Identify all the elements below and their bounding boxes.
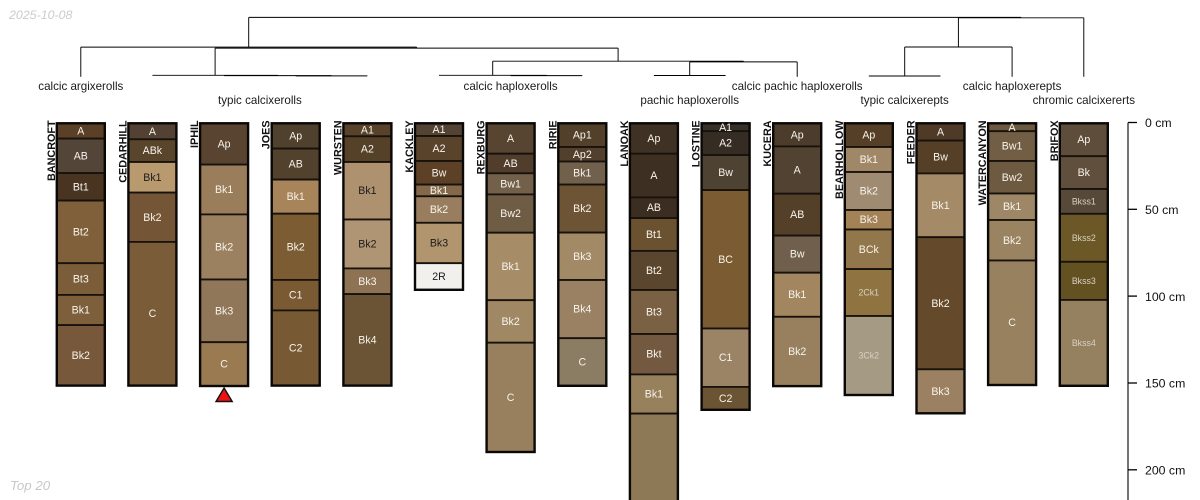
svg-text:2025-10-08: 2025-10-08 — [8, 8, 72, 22]
svg-text:Bk1: Bk1 — [215, 184, 233, 196]
svg-text:Bk3: Bk3 — [358, 276, 376, 288]
svg-text:Bk3: Bk3 — [931, 386, 949, 398]
svg-text:Bk1: Bk1 — [72, 305, 90, 317]
svg-text:Bk2: Bk2 — [573, 203, 591, 215]
svg-text:Bw: Bw — [790, 249, 805, 261]
svg-text:Bw: Bw — [718, 167, 733, 179]
svg-text:A2: A2 — [433, 143, 446, 155]
svg-text:A1: A1 — [433, 124, 446, 136]
svg-text:Bw: Bw — [432, 167, 447, 179]
svg-text:Bk3: Bk3 — [430, 238, 448, 250]
svg-text:Bk2: Bk2 — [860, 186, 878, 198]
svg-text:A: A — [149, 126, 157, 138]
svg-text:Bk4: Bk4 — [358, 334, 376, 346]
svg-text:Bk2: Bk2 — [215, 241, 233, 253]
svg-text:2Ck1: 2Ck1 — [859, 288, 880, 298]
svg-text:Ap: Ap — [289, 130, 302, 142]
svg-text:Bk1: Bk1 — [860, 154, 878, 166]
svg-text:A: A — [1009, 122, 1017, 134]
svg-text:Bk2: Bk2 — [358, 238, 376, 250]
svg-text:Bw: Bw — [933, 152, 948, 164]
svg-text:Ap: Ap — [862, 130, 875, 142]
svg-text:Ap: Ap — [218, 138, 231, 150]
svg-text:Ap2: Ap2 — [573, 149, 592, 161]
svg-text:pachic haploxerolls: pachic haploxerolls — [640, 94, 739, 107]
svg-text:C1: C1 — [289, 290, 303, 302]
svg-text:Bk2: Bk2 — [72, 350, 90, 362]
svg-text:Bkt: Bkt — [646, 349, 661, 361]
svg-text:Bk3: Bk3 — [860, 214, 878, 226]
svg-text:chromic calcixererts: chromic calcixererts — [1033, 94, 1136, 107]
svg-text:Bk1: Bk1 — [573, 168, 591, 180]
svg-text:C: C — [220, 359, 228, 371]
svg-text:C: C — [1008, 317, 1016, 329]
svg-text:Bk1: Bk1 — [501, 261, 519, 273]
svg-text:Ap: Ap — [647, 133, 660, 145]
svg-text:50 cm: 50 cm — [1145, 203, 1179, 217]
svg-text:BC: BC — [718, 254, 733, 266]
svg-text:Bkss2: Bkss2 — [1072, 233, 1096, 243]
svg-text:C: C — [149, 308, 157, 320]
svg-text:AB: AB — [74, 150, 88, 162]
svg-text:A: A — [650, 170, 658, 182]
svg-text:A2: A2 — [361, 144, 374, 156]
svg-text:Bk2: Bk2 — [931, 298, 949, 310]
svg-text:Bk1: Bk1 — [788, 289, 806, 301]
svg-text:Bt3: Bt3 — [73, 274, 89, 286]
svg-text:C: C — [507, 392, 515, 404]
svg-text:Bk3: Bk3 — [573, 251, 591, 263]
svg-text:200 cm: 200 cm — [1145, 463, 1185, 477]
svg-text:Bt1: Bt1 — [646, 229, 662, 241]
svg-text:A1: A1 — [361, 124, 374, 136]
svg-text:Bk3: Bk3 — [215, 305, 233, 317]
svg-text:AB: AB — [647, 202, 661, 214]
svg-text:A1: A1 — [719, 122, 732, 134]
svg-text:calcic pachic haploxerolls: calcic pachic haploxerolls — [732, 80, 863, 93]
svg-text:Bk1: Bk1 — [358, 185, 376, 197]
svg-text:BCk: BCk — [859, 244, 880, 256]
svg-text:Bk1: Bk1 — [931, 200, 949, 212]
svg-text:calcic haploxerolls: calcic haploxerolls — [464, 80, 558, 93]
svg-text:Bk1: Bk1 — [645, 389, 663, 401]
svg-text:Ap: Ap — [1077, 134, 1090, 146]
svg-text:AB: AB — [289, 159, 303, 171]
svg-text:2R: 2R — [432, 271, 446, 283]
svg-text:A2: A2 — [719, 138, 732, 150]
svg-text:Bkss4: Bkss4 — [1072, 338, 1096, 348]
svg-text:Bk2: Bk2 — [287, 241, 305, 253]
svg-text:Bk2: Bk2 — [501, 316, 519, 328]
svg-text:A: A — [794, 165, 802, 177]
svg-text:A: A — [937, 126, 945, 138]
svg-text:calcic argixerolls: calcic argixerolls — [38, 80, 123, 93]
svg-text:Bkss1: Bkss1 — [1072, 196, 1096, 206]
svg-text:Bt2: Bt2 — [73, 226, 89, 238]
svg-text:typic calcixerepts: typic calcixerepts — [861, 94, 949, 107]
svg-text:C2: C2 — [289, 343, 303, 355]
svg-text:Bk: Bk — [1078, 167, 1091, 179]
svg-text:Bk1: Bk1 — [430, 185, 448, 197]
svg-text:calcic haploxerepts: calcic haploxerepts — [963, 80, 1062, 93]
svg-text:Bw2: Bw2 — [500, 208, 521, 220]
svg-text:Bk2: Bk2 — [1003, 235, 1021, 247]
svg-text:Bt2: Bt2 — [646, 265, 662, 277]
svg-text:AB: AB — [790, 209, 804, 221]
svg-text:Bkss3: Bkss3 — [1072, 276, 1096, 286]
svg-text:Bk2: Bk2 — [788, 346, 806, 358]
svg-text:C2: C2 — [719, 393, 733, 405]
svg-text:ABk: ABk — [143, 145, 163, 157]
svg-text:Bw2: Bw2 — [1002, 172, 1023, 184]
svg-text:Top 20: Top 20 — [10, 478, 51, 493]
svg-text:0 cm: 0 cm — [1145, 116, 1172, 130]
svg-text:typic calcixerolls: typic calcixerolls — [218, 94, 302, 107]
svg-text:100 cm: 100 cm — [1145, 290, 1185, 304]
svg-text:Bw1: Bw1 — [1002, 141, 1023, 153]
svg-text:Bk1: Bk1 — [1003, 201, 1021, 213]
svg-text:C: C — [578, 357, 586, 369]
svg-text:C1: C1 — [719, 352, 733, 364]
svg-text:AB: AB — [504, 158, 518, 170]
svg-text:Bk1: Bk1 — [287, 191, 305, 203]
svg-text:150 cm: 150 cm — [1145, 377, 1185, 391]
svg-text:A: A — [77, 125, 85, 137]
svg-text:Bk2: Bk2 — [430, 204, 448, 216]
svg-text:Ap: Ap — [791, 129, 804, 141]
svg-text:Bt1: Bt1 — [73, 181, 89, 193]
svg-text:A: A — [507, 133, 515, 145]
svg-text:Bt3: Bt3 — [646, 307, 662, 319]
svg-text:Ap1: Ap1 — [573, 130, 592, 142]
svg-text:3Ck2: 3Ck2 — [859, 351, 880, 361]
svg-text:Bk1: Bk1 — [143, 172, 161, 184]
svg-text:Bw1: Bw1 — [500, 178, 521, 190]
svg-text:Bk2: Bk2 — [143, 212, 161, 224]
svg-text:Bk4: Bk4 — [573, 304, 591, 316]
